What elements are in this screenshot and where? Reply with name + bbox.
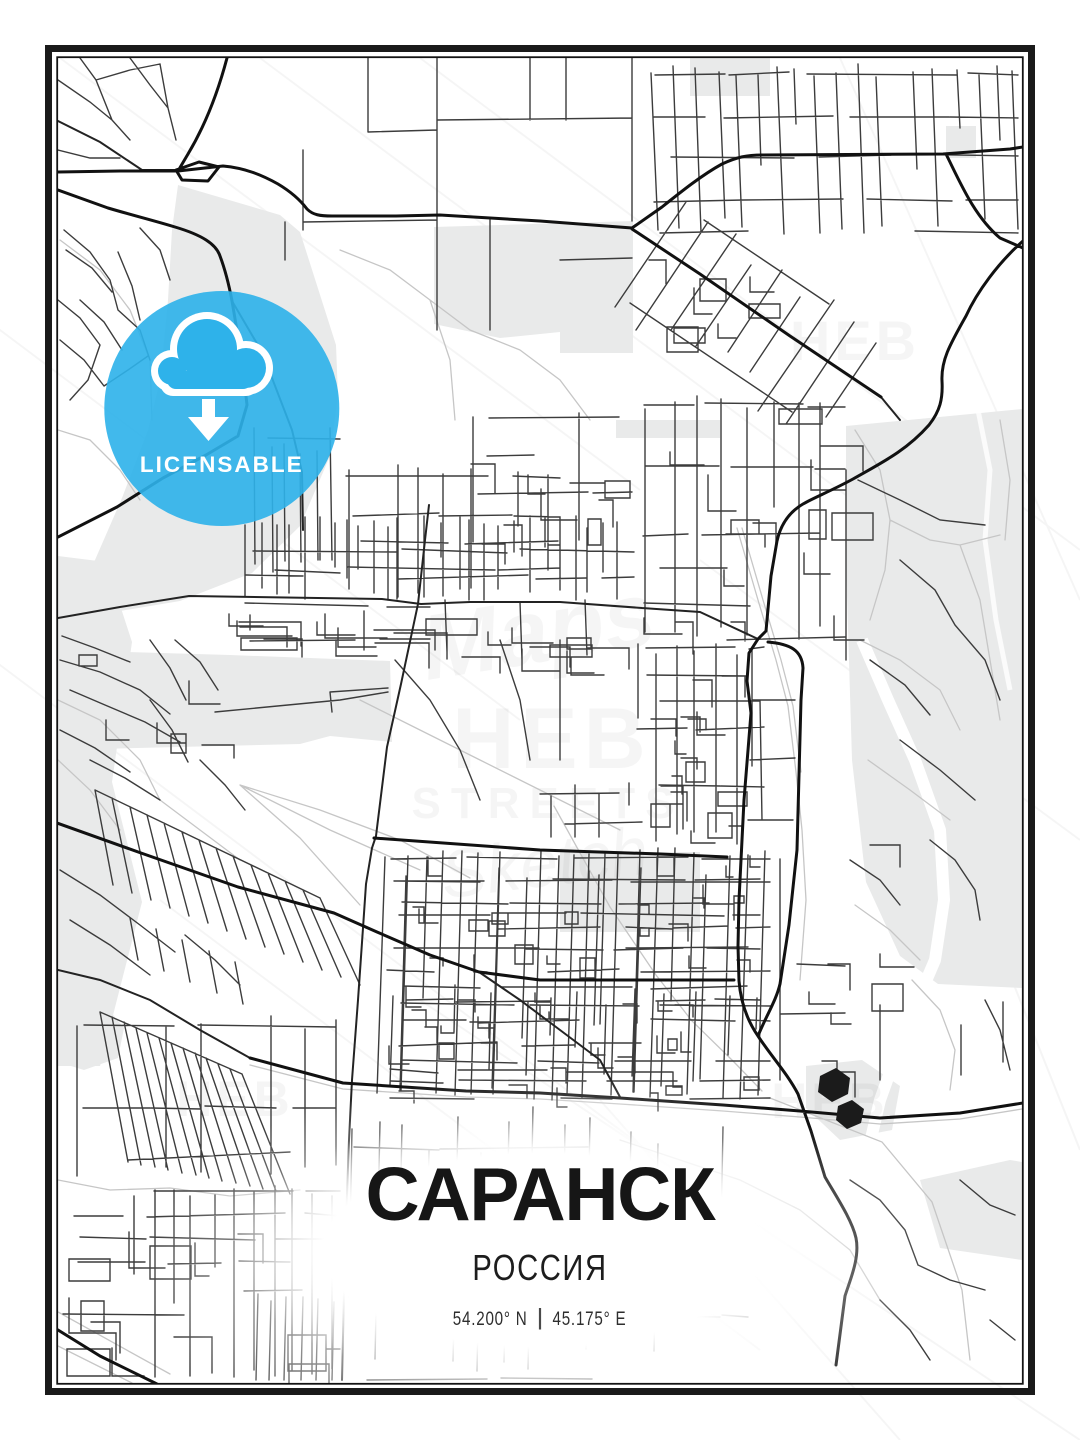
svg-text:45.175° E: 45.175° E [552, 1307, 626, 1329]
svg-text:HEB: HEB [176, 1071, 294, 1127]
svg-text:HEB: HEB [452, 691, 652, 787]
svg-text:LICENSABLE: LICENSABLE [140, 452, 304, 477]
svg-text:HEB: HEB [790, 309, 920, 372]
svg-text:54.200° N: 54.200° N [453, 1307, 528, 1329]
svg-text:САРАНСК: САРАНСК [365, 1152, 716, 1236]
svg-text:РОССИЯ: РОССИЯ [472, 1247, 607, 1288]
